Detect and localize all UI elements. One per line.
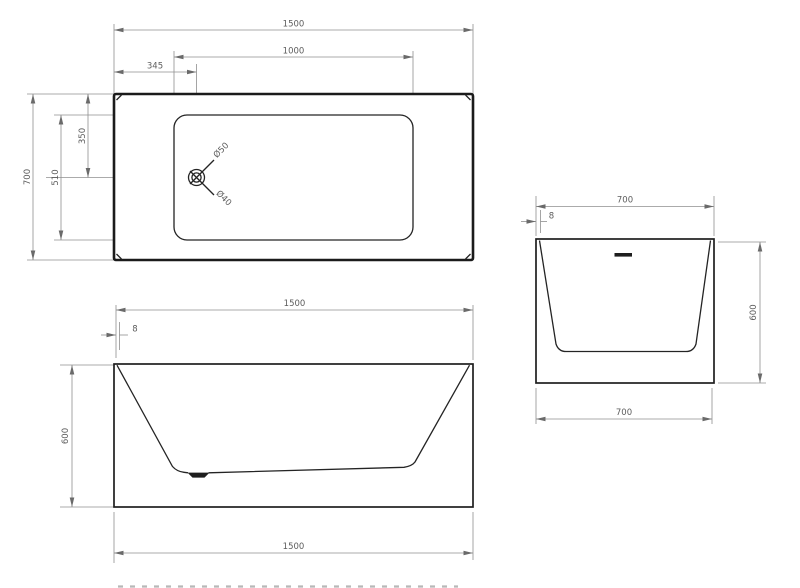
label-front-overall-length-top: 1500 bbox=[284, 299, 306, 309]
label-front-overall-height: 600 bbox=[61, 428, 71, 444]
label-top-drain-offset-y: 350 bbox=[78, 128, 88, 144]
label-side-rim-thickness: 8 bbox=[549, 212, 554, 222]
label-side-overall-width-bottom: 700 bbox=[616, 408, 632, 418]
label-side-overall-height: 600 bbox=[749, 304, 759, 320]
label-top-overall-length: 1500 bbox=[283, 20, 305, 30]
label-front-rim-thickness: 8 bbox=[132, 325, 137, 335]
label-top-overall-width: 700 bbox=[23, 169, 33, 185]
top-view: 1500 1000 345 700 510 350 Ø50 Ø40 bbox=[23, 20, 473, 261]
label-top-inner-width: 510 bbox=[51, 169, 61, 185]
label-front-overall-length-bottom: 1500 bbox=[283, 542, 305, 552]
label-side-overall-width-top: 700 bbox=[617, 196, 633, 206]
bathtub-drawing: 1500 1000 345 700 510 350 Ø50 Ø40 bbox=[0, 0, 800, 588]
top-view-outline bbox=[114, 94, 473, 260]
front-view-outline bbox=[114, 364, 473, 507]
overflow-slot bbox=[615, 253, 633, 257]
label-top-inner-length: 1000 bbox=[283, 47, 305, 57]
side-view: 700 8 80 63 8 600 700 bbox=[521, 196, 766, 425]
label-top-drain-offset-x: 345 bbox=[147, 62, 163, 72]
front-view: 1500 8 466 600 1500 bbox=[60, 299, 473, 563]
side-view-outline bbox=[536, 239, 714, 383]
technical-drawing-sheet: 1500 1000 345 700 510 350 Ø50 Ø40 bbox=[0, 0, 800, 588]
